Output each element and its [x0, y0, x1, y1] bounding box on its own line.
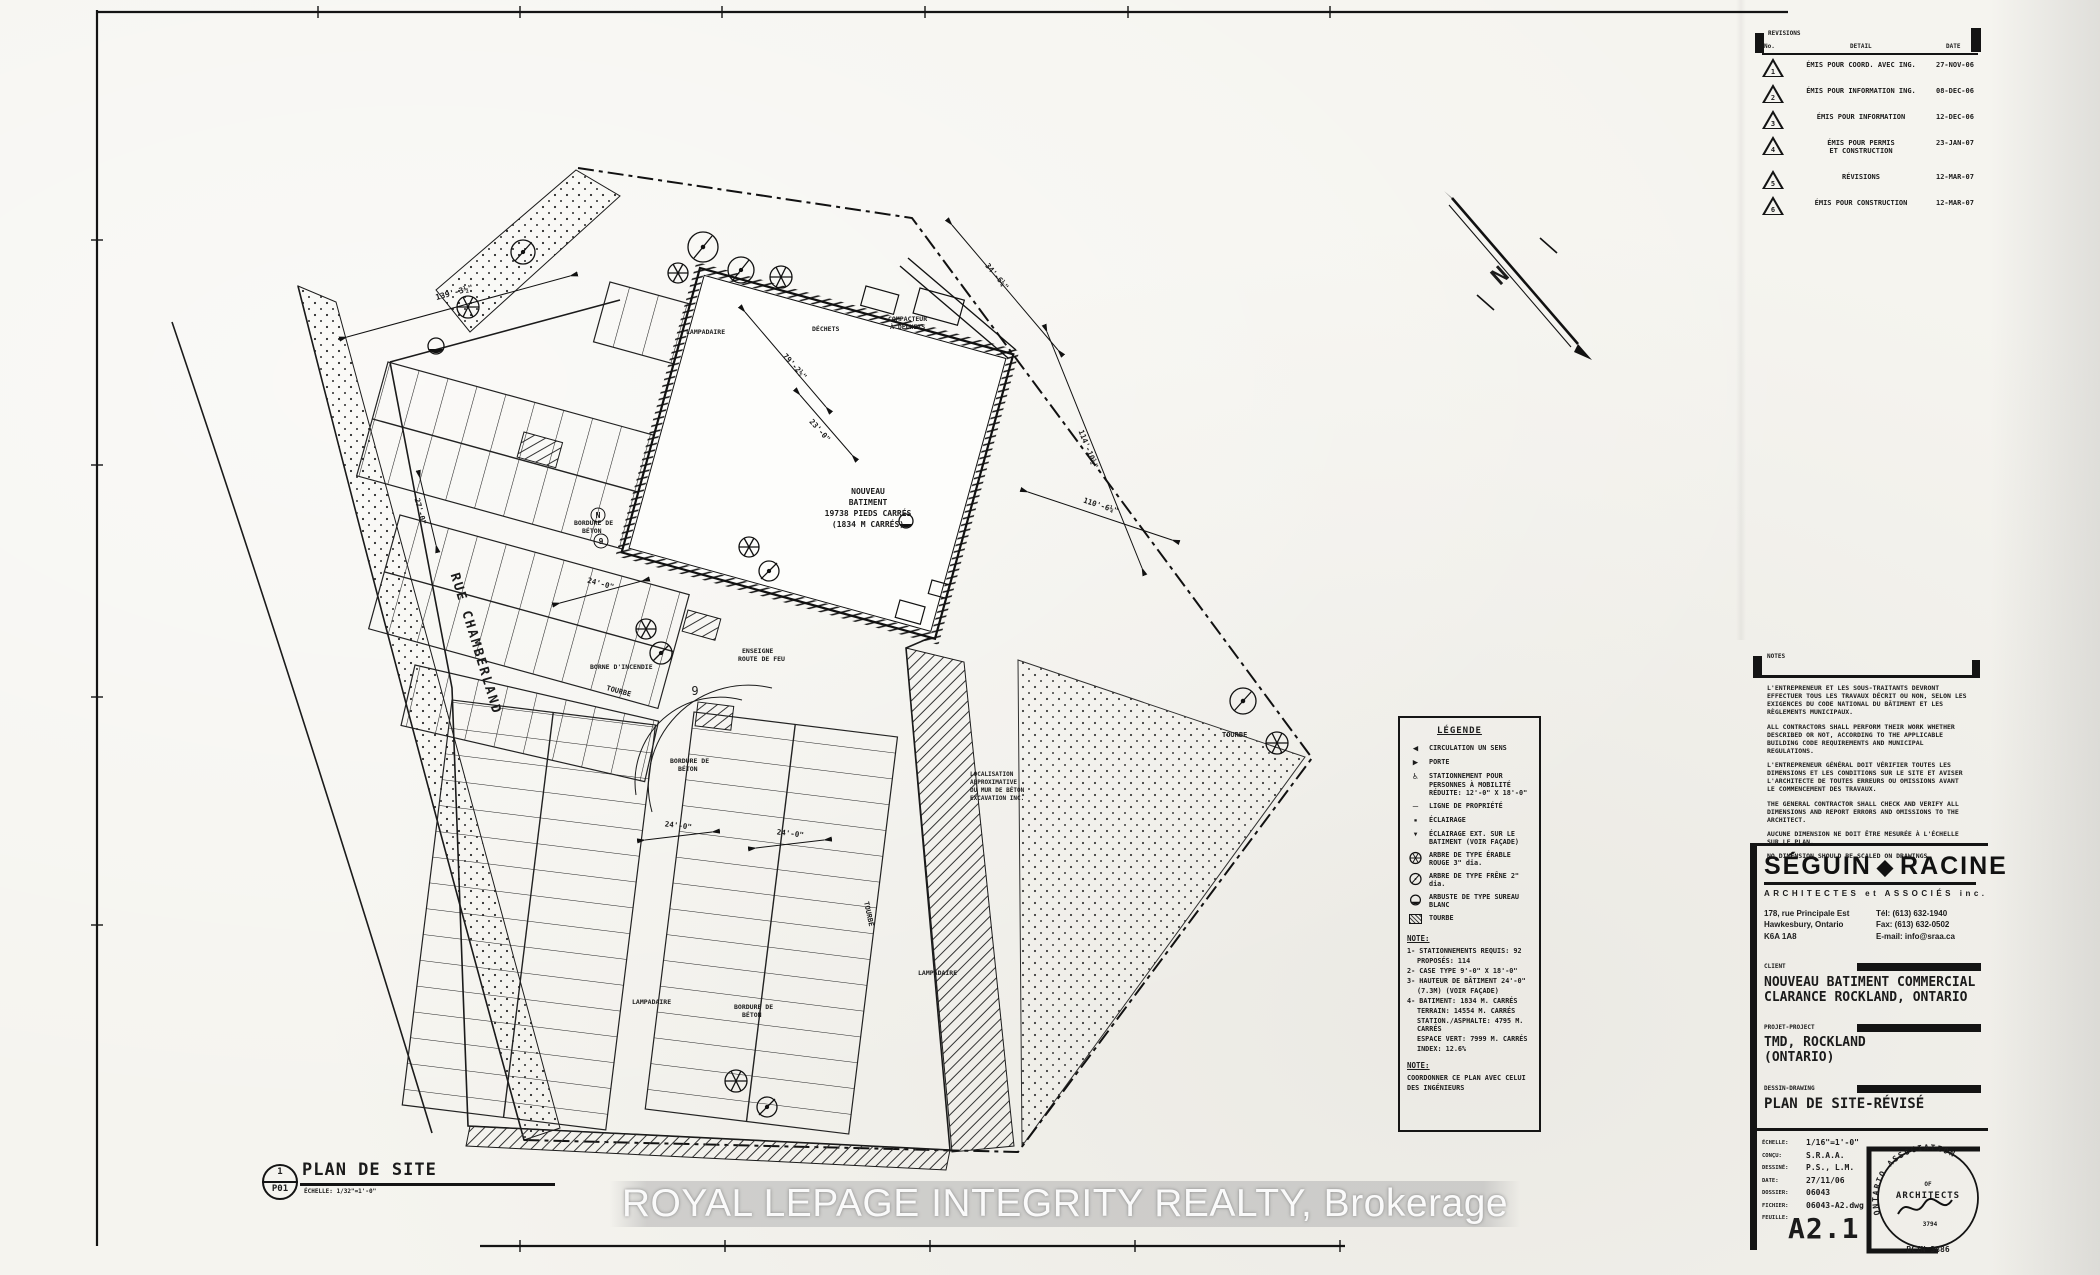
- corner-mark: [1971, 28, 1981, 52]
- svg-text:LOCALISATION: LOCALISATION: [970, 771, 1014, 778]
- scan-edge-shadow: [1990, 0, 2100, 1275]
- svg-text:LAMPADAIRE: LAMPADAIRE: [686, 328, 725, 336]
- maple-tree-icon: [1407, 851, 1424, 868]
- divider: [1762, 675, 1980, 678]
- note-paragraph: THE GENERAL CONTRACTOR SHALL CHECK AND V…: [1767, 800, 1967, 824]
- shrub-icon: [1407, 893, 1424, 910]
- legend-entry: ARBUSTE DE TYPE SUREAU BLANC: [1407, 893, 1532, 910]
- brokerage-watermark: ROYAL LEPAGE INTEGRITY REALTY, Brokerage: [610, 1181, 1520, 1227]
- revision-delta-icon: 2: [1762, 84, 1784, 104]
- svg-text:N: N: [596, 511, 601, 520]
- firm-logo: SÉGUIN◆RACINE: [1764, 852, 1988, 881]
- firm-contact: Tél: (613) 632-1940 Fax: (613) 632-0502 …: [1876, 908, 1988, 943]
- ash-tree-icon: [1407, 872, 1424, 889]
- diamond-icon: ◆: [1872, 856, 1900, 879]
- revision-row: 6 ÉMIS POUR CONSTRUCTION 12-MAR-07: [1750, 196, 1994, 222]
- site-plan-sheet: RUE CHAMBERLAND NOUVEAU BATIMENT 19738 P…: [0, 0, 2100, 1275]
- revision-delta-icon: 6: [1762, 196, 1784, 216]
- view-title: PLAN DE SITE: [302, 1160, 437, 1180]
- accessible-parking-icon: ♿: [1407, 772, 1424, 782]
- label-bar: [1857, 1024, 1981, 1032]
- svg-text:BATIMENT: BATIMENT: [849, 498, 888, 507]
- revision-row: 3 ÉMIS POUR INFORMATION 12-DEC-06: [1750, 110, 1994, 136]
- divider: [262, 1181, 298, 1183]
- svg-text:BÉTON: BÉTON: [582, 526, 602, 535]
- north-arrow: 27'-0" 27'-0" N: [1444, 191, 1592, 360]
- light-icon: ▪: [1407, 816, 1424, 826]
- revision-table: REVISIONS No. DETAIL DATE 1 ÉMIS POUR CO…: [1750, 22, 1994, 222]
- firm-block: SÉGUIN◆RACINE ARCHITECTES et ASSOCIÉS in…: [1764, 852, 1988, 942]
- svg-text:DÉCHETS: DÉCHETS: [812, 324, 839, 333]
- svg-text:24'-0": 24'-0": [664, 819, 692, 831]
- label-bar: [1857, 963, 1981, 971]
- note-paragraph: ALL CONTRACTORS SHALL PERFORM THEIR WORK…: [1767, 723, 1967, 756]
- svg-text:À DÉCHETS: À DÉCHETS: [890, 322, 925, 331]
- scan-crease: [1736, 0, 1746, 640]
- wall-light-icon: ▼: [1407, 830, 1424, 840]
- notes-title: NOTES: [1767, 653, 1785, 660]
- label-bar: [1857, 1085, 1981, 1093]
- legend-entry: ◀ CIRCULATION UN SENS: [1407, 744, 1532, 754]
- svg-text:DU MUR DE BÉTON: DU MUR DE BÉTON: [970, 786, 1025, 794]
- svg-text:BÉTON: BÉTON: [742, 1010, 762, 1019]
- svg-text:OF: OF: [1924, 1181, 1932, 1188]
- legend-box: LÉGENDE ◀ CIRCULATION UN SENS ▶ PORTE ♿ …: [1398, 716, 1541, 1132]
- legend-entry: ▼ ÉCLAIRAGE EXT. SUR LE BATIMENT (VOIR F…: [1407, 830, 1532, 847]
- svg-text:BÉTON: BÉTON: [678, 764, 698, 773]
- drawing-title: PLAN DE SITE-RÉVISÉ: [1764, 1096, 1924, 1113]
- sheet-number: A2.1: [1788, 1212, 1859, 1245]
- svg-text:TOURBE: TOURBE: [1222, 731, 1247, 739]
- legend-note-title: NOTE:: [1407, 934, 1532, 943]
- shrub-symbol: [428, 338, 444, 354]
- project-name: TMD, ROCKLAND(ONTARIO): [1764, 1035, 1866, 1066]
- svg-text:BCIN 3886: BCIN 3886: [1906, 1245, 1950, 1254]
- revision-row: 2 ÉMIS POUR INFORMATION ING. 08-DEC-06: [1750, 84, 1994, 110]
- legend-title: LÉGENDE: [1437, 726, 1532, 737]
- client-name: NOUVEAU BATIMENT COMMERCIALCLARANCE ROCK…: [1764, 975, 1975, 1006]
- svg-text:BORDURE DE: BORDURE DE: [670, 757, 709, 765]
- revision-row: 5 RÉVISIONS 12-MAR-07: [1750, 170, 1994, 196]
- divider: [1750, 1128, 1988, 1131]
- revision-row: 1 ÉMIS POUR COORD. AVEC ING. 27-NOV-06: [1750, 58, 1994, 84]
- svg-text:NOUVEAU: NOUVEAU: [851, 487, 885, 496]
- general-notes-block: NOTES L'ENTREPRENEUR ET LES SOUS-TRAITAN…: [1750, 648, 1990, 856]
- note-paragraph: L'ENTREPRENEUR GÉNÉRAL DOIT VÉRIFIER TOU…: [1767, 761, 1967, 794]
- revision-delta-icon: 5: [1762, 170, 1784, 190]
- architect-stamp: ONTARIO ASSOCIATION OF ARCHITECTS 3794 B…: [1869, 1143, 1980, 1254]
- svg-text:LAMPADAIRE: LAMPADAIRE: [632, 998, 671, 1006]
- door-arrow-icon: ▶: [1407, 758, 1424, 768]
- revision-row: 4 ÉMIS POUR PERMISET CONSTRUCTION 23-JAN…: [1750, 136, 1994, 168]
- view-reference: 1 P01 PLAN DE SITE ÉCHELLE: 1/32"=1'-0": [238, 1158, 578, 1212]
- svg-text:COMPACTEUR: COMPACTEUR: [888, 315, 927, 323]
- svg-text:9: 9: [599, 537, 604, 546]
- legend-entry: ▪ ÉCLAIRAGE: [1407, 816, 1532, 826]
- divider: [1764, 882, 1976, 885]
- divider: [300, 1183, 555, 1186]
- svg-text:(1834 M CARRÉS): (1834 M CARRÉS): [832, 518, 904, 529]
- revisions-title: REVISIONS: [1768, 30, 1801, 37]
- one-way-arrow-icon: ◀: [1407, 744, 1424, 754]
- revision-delta-icon: 3: [1762, 110, 1784, 130]
- svg-text:34'-6¼": 34'-6¼": [983, 261, 1010, 291]
- drawing-label: DESSIN-DRAWING: [1764, 1085, 1815, 1092]
- firm-address: 178, rue Principale Est Hawkesbury, Onta…: [1764, 908, 1876, 943]
- corner-mark: [1753, 656, 1762, 678]
- legend-note2-title: NOTE:: [1407, 1061, 1532, 1070]
- divider: [1762, 53, 1978, 55]
- svg-text:EXCAVATION INC.: EXCAVATION INC.: [970, 795, 1024, 802]
- corner-mark: [1755, 33, 1764, 53]
- view-scale: ÉCHELLE: 1/32"=1'-0": [304, 1188, 376, 1195]
- firm-tagline: ARCHITECTES et ASSOCIÉS inc.: [1764, 889, 1988, 898]
- view-sheet: P01: [262, 1184, 298, 1194]
- client-label: CLIENT: [1764, 963, 1786, 970]
- property-line-icon: —: [1407, 802, 1424, 812]
- svg-text:ENSEIGNE: ENSEIGNE: [742, 647, 773, 655]
- svg-text:LAMPADAIRE: LAMPADAIRE: [918, 969, 957, 977]
- legend-entry: ARBRE DE TYPE FRÊNE 2" dia.: [1407, 872, 1532, 889]
- svg-text:APPROXIMATIVE: APPROXIMATIVE: [970, 779, 1017, 786]
- legend-entry: ▶ PORTE: [1407, 758, 1532, 768]
- legend-entry: ARBRE DE TYPE ÉRABLE ROUGE 3" dia.: [1407, 851, 1532, 868]
- revision-delta-icon: 4: [1762, 136, 1784, 156]
- legend-entry: — LIGNE DE PROPRIÉTÉ: [1407, 802, 1532, 812]
- svg-text:BORDURE DE: BORDURE DE: [734, 1003, 773, 1011]
- accessible-parking-icon: 9: [691, 684, 698, 698]
- view-number: 1: [262, 1167, 298, 1177]
- divider: [1750, 843, 1988, 846]
- titleblock-left-bar: [1750, 846, 1757, 1250]
- revision-delta-icon: 1: [1762, 58, 1784, 78]
- svg-text:114'-10½": 114'-10½": [1077, 429, 1101, 470]
- turf-swatch-icon: [1407, 914, 1424, 927]
- project-label: PROJET-PROJECT: [1764, 1024, 1815, 1031]
- note-paragraph: L'ENTREPRENEUR ET LES SOUS-TRAITANTS DEV…: [1767, 684, 1967, 717]
- legend-entry: TOURBE: [1407, 914, 1532, 927]
- legend-entry: ♿ STATIONNEMENT POUR PERSONNES À MOBILIT…: [1407, 772, 1532, 797]
- svg-text:BORNE D'INCENDIE: BORNE D'INCENDIE: [590, 663, 653, 671]
- svg-text:3794: 3794: [1923, 1221, 1938, 1228]
- svg-text:ROUTE DE FEU: ROUTE DE FEU: [738, 655, 785, 663]
- svg-text:19738 PIEDS CARRÉS: 19738 PIEDS CARRÉS: [825, 507, 912, 518]
